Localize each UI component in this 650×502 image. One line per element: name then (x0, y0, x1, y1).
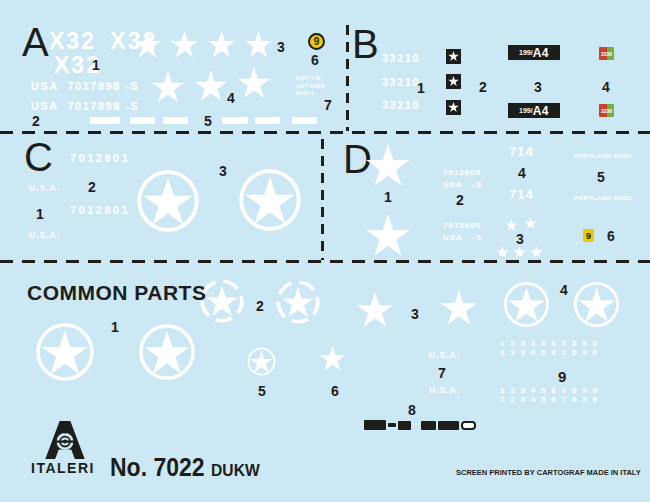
usa-text-decal: U.S.A. (429, 351, 460, 360)
black-square-star-decal (446, 100, 461, 115)
star-icon (133, 31, 162, 60)
stencil-line: LEFT GUAR (296, 83, 324, 91)
callout-cp-6: 6 (331, 384, 339, 398)
callout-b-2: 2 (479, 80, 487, 94)
callout-cp-8: 8 (408, 403, 416, 417)
serial-7012801-decal: 7012801 (70, 205, 130, 216)
unit-plate-decal: 199/A4 (508, 103, 560, 118)
usa-serial-decal: 7015800 USA -S (443, 167, 482, 191)
stencil-line: DAVE S (296, 90, 324, 98)
callout-a-1: 1 (92, 58, 100, 72)
digit-strip-decal: 1 2 3 4 5 6 7 8 9 0 (500, 349, 599, 357)
usa-serial-decal: USA 7017898 -S (31, 81, 139, 92)
circled-star-icon (35, 322, 95, 382)
digit-strip-decal: 1 2 3 4 5 6 7 8 9 0 (500, 340, 599, 348)
callout-a-4: 4 (227, 91, 235, 105)
digit-strip-decal: 1 2 3 4 5 6 7 8 9 0 (500, 396, 599, 404)
panel-decal (398, 421, 411, 430)
callout-d-6: 6 (607, 229, 615, 243)
star-icon (448, 76, 459, 87)
serial-line: 7015800 (443, 220, 482, 232)
circled-star-icon (136, 169, 200, 233)
yellow-roundel-decal: 9 (308, 33, 325, 50)
callout-a-2: 2 (32, 114, 40, 128)
callout-cp-5: 5 (258, 384, 266, 398)
dashed-divider-horizontal-2 (0, 260, 650, 263)
serial-line: USA -S (443, 232, 482, 244)
panel-decal-outline (461, 421, 476, 430)
callout-d-4: 4 (518, 166, 526, 180)
callout-b-3: 3 (534, 80, 542, 94)
star-icon (448, 102, 459, 113)
callout-c-2: 2 (88, 180, 96, 194)
star-icon (356, 292, 394, 330)
circled-star-icon (238, 168, 302, 232)
callout-cp-2: 2 (256, 299, 264, 313)
brand-name: ITALERI (31, 461, 95, 475)
callout-cp-1: 1 (111, 320, 119, 334)
callout-d-5: 5 (597, 170, 605, 184)
star-icon (237, 67, 271, 101)
section-c-label: C (24, 137, 53, 177)
usa-text-decal: U.S.A. (29, 231, 60, 240)
kit-name: DUKW (211, 462, 260, 479)
kit-title: No. 7022 DUKW (110, 455, 260, 480)
callout-d-2: 2 (456, 193, 464, 207)
star-icon (151, 71, 185, 105)
dashed-divider-vertical-ab (346, 25, 349, 131)
serial-7012801-decal: 7012801 (70, 153, 130, 164)
callout-c-3: 3 (219, 164, 227, 178)
flag-number: 3336 (601, 108, 612, 114)
usa-serial-decal: 7015800 USA -S (443, 220, 482, 244)
small-star-icon (496, 246, 509, 259)
callout-cp-9: 9 (558, 369, 566, 384)
stencil-line: CAPT 1 IN (296, 75, 324, 83)
unit-714-decal: 714 (509, 145, 534, 158)
usa-text-decal: U.S.A. (29, 184, 60, 193)
star-icon (365, 214, 411, 260)
dashed-divider-horizontal-1 (0, 131, 650, 134)
plate-prefix: 199/ (519, 107, 533, 114)
circled-star-icon (503, 281, 550, 328)
invasion-star-icon (199, 278, 245, 324)
flag-number-decal: 3336 (599, 104, 614, 117)
small-star-icon (530, 246, 543, 259)
callout-d-1: 1 (384, 190, 392, 204)
black-square-star-decal (446, 49, 461, 64)
panel-decal (438, 421, 459, 430)
flag-number-decal: 3336 (599, 47, 614, 60)
footboard-stripe-decal (222, 117, 248, 124)
star-icon (244, 31, 273, 60)
section-b-label: B (352, 24, 379, 64)
plate-prefix: 199/ (519, 49, 533, 56)
callout-cp-3: 3 (411, 307, 419, 321)
panel-decal (421, 421, 436, 430)
usa-serial-decal: USA 7017898 -S (31, 101, 139, 112)
serial-33210-decal: 33210 (382, 100, 420, 111)
digit-strip-decal: 1 2 3 4 5 6 7 8 9 0 (500, 387, 599, 395)
serial-33210-decal: 33210 (382, 77, 420, 88)
circled-star-icon (247, 347, 276, 376)
star-icon (319, 346, 346, 373)
star-icon (170, 31, 199, 60)
panel-decal (388, 423, 396, 427)
serial-line: 7015800 (443, 167, 482, 179)
roundel-digit: 9 (314, 36, 320, 47)
instrument-panel-decals (364, 420, 476, 430)
print-credit: SCREEN PRINTED BY CARTOGRAF MADE IN ITAL… (456, 469, 641, 477)
callout-a-5: 5 (204, 114, 212, 128)
callout-a-3: 3 (277, 40, 285, 54)
callout-b-4: 4 (602, 80, 610, 94)
badge-digit: 9 (586, 231, 591, 241)
footboard-stripe-decal (292, 117, 317, 124)
flag-number: 3336 (601, 51, 612, 57)
boat-name-decal: PORTLAND ROSE (574, 153, 633, 159)
section-a-label: A (22, 22, 49, 62)
footboard-stripe-decal (163, 117, 188, 124)
callout-cp-4: 4 (560, 283, 568, 297)
unit-714-decal: 714 (509, 188, 534, 201)
yellow-number-decal: 9 (583, 229, 594, 242)
footboard-stripe-decal (90, 117, 120, 124)
circled-star-icon (573, 281, 620, 328)
black-square-star-decal (446, 74, 461, 89)
serial-line: USA -S (443, 179, 482, 191)
panel-decal (364, 420, 386, 430)
callout-cp-7: 7 (438, 366, 446, 380)
decal-sheet: A X32 X32 X32 1 3 9 6 4 CAPT 1 IN LEFT G… (0, 0, 650, 502)
callout-d-3: 3 (516, 232, 524, 246)
callout-a-6: 6 (311, 53, 319, 67)
usa-text-decal: U.S.A. (429, 386, 460, 395)
kit-number: No. 7022 (110, 455, 205, 480)
boat-name-decal: PORTLAND ROSE (574, 195, 633, 201)
footboard-stripe-decal (130, 117, 155, 124)
callout-a-7: 7 (324, 98, 332, 112)
circled-star-icon (138, 323, 196, 381)
callout-c-1: 1 (36, 207, 44, 221)
common-parts-heading: COMMON PARTS (27, 282, 206, 303)
small-star-icon (513, 246, 526, 259)
italeri-logo-icon (42, 421, 88, 459)
star-icon (194, 70, 228, 104)
invasion-star-icon (275, 279, 321, 325)
star-icon (448, 51, 459, 62)
stencil-text-decal: CAPT 1 IN LEFT GUAR DAVE S (296, 75, 324, 98)
callout-b-1: 1 (417, 81, 425, 95)
star-icon (440, 290, 478, 328)
dashed-divider-vertical-cd (321, 139, 324, 260)
plate-main: A4 (533, 46, 549, 60)
small-star-icon (524, 217, 537, 230)
star-icon (365, 144, 411, 190)
footboard-stripe-decal (255, 117, 280, 124)
plate-main: A4 (533, 104, 549, 118)
serial-33210-decal: 33210 (382, 53, 420, 64)
star-icon (207, 31, 236, 60)
unit-plate-decal: 199/A4 (508, 45, 560, 60)
